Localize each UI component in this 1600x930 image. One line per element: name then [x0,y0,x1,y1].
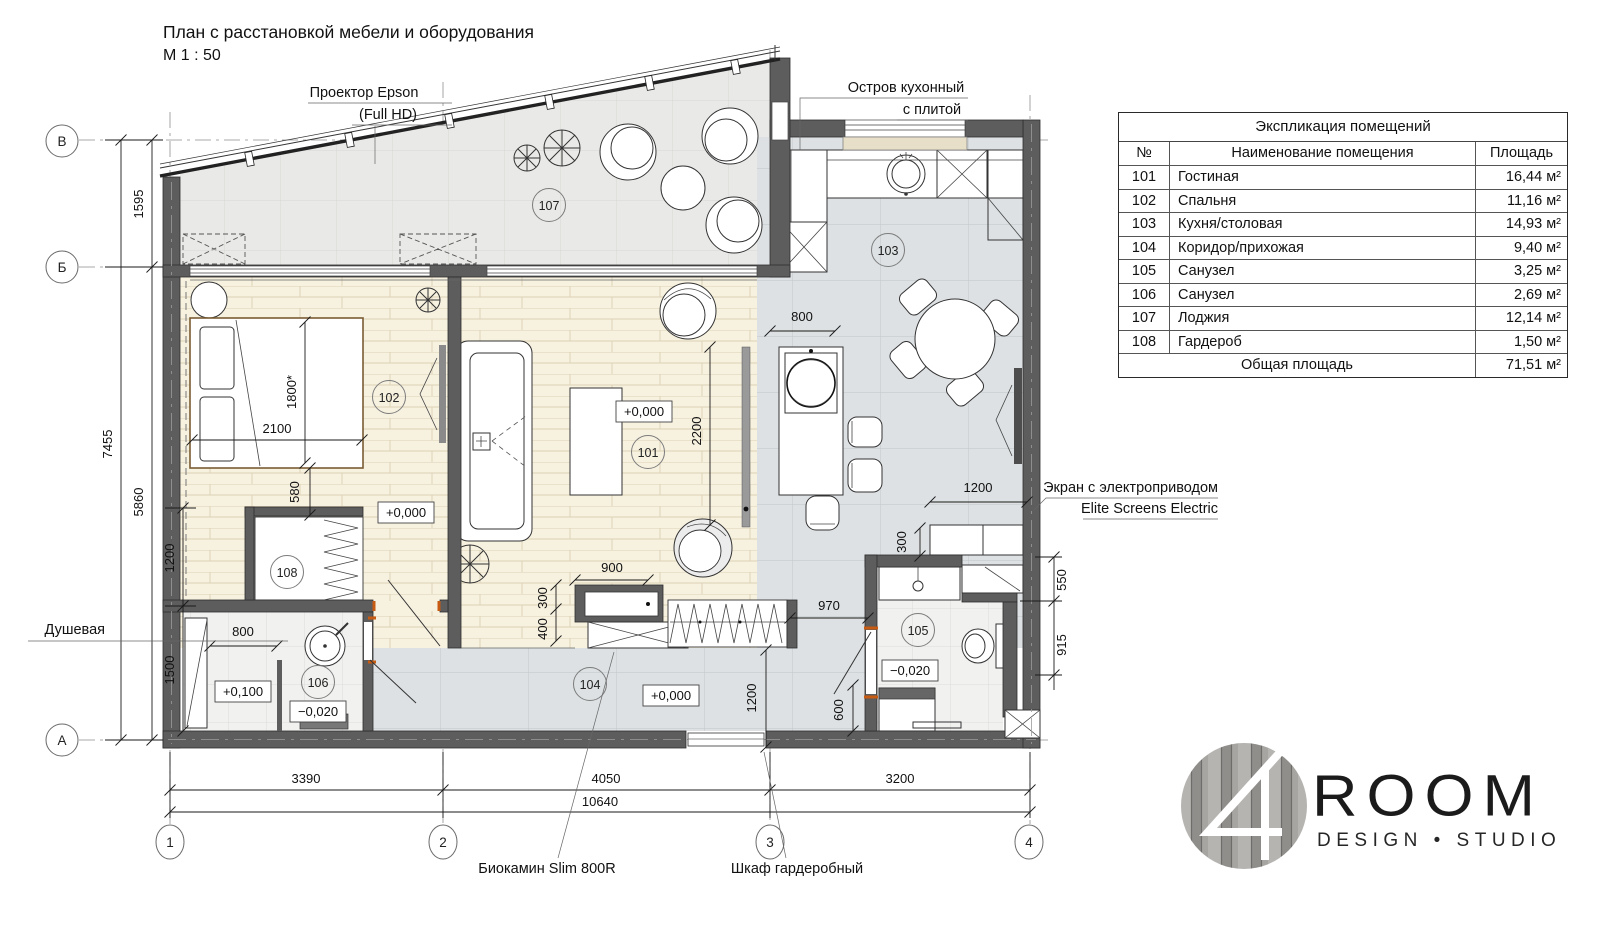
total-label: Общая площадь [1119,354,1475,377]
room-103: 103 [878,244,899,258]
table-row: 103Кухня/столовая14,93 м² [1119,213,1567,237]
screen-label-line2: Elite Screens Electric [1081,501,1218,517]
table-row: 108Гардероб1,50 м² [1119,331,1567,355]
kitchen-island [779,347,843,495]
level-shower: −0,020 [298,704,338,719]
table-header: № Наименование помещения Площадь [1119,142,1567,166]
dim-5860: 5860 [131,488,146,517]
logo-name: ROOM [1312,763,1544,829]
row-area: 9,40 м² [1475,237,1567,260]
axis-col-4: 4 [1025,835,1033,850]
coffee-table [570,388,622,495]
dim-900: 900 [601,560,623,575]
row-name: Коридор/прихожая [1169,237,1475,260]
dim-4050: 4050 [592,771,621,786]
armchair [660,283,716,339]
dim-600: 600 [831,699,846,721]
row-name: Санузел [1169,260,1475,283]
island-label-line1: Остров кухонный [848,80,964,96]
row-area: 12,14 м² [1475,307,1567,330]
room-106: 106 [308,676,329,690]
logo-wood-circle [1181,743,1307,869]
dim-580: 580 [287,481,302,503]
room-107: 107 [539,199,560,213]
projector-label-line2: (Full HD) [359,107,417,123]
row-name: Спальня [1169,190,1475,213]
axis-col-3: 3 [766,835,774,850]
level-bath: −0,020 [890,663,930,678]
island-label-line2: с плитой [903,102,961,118]
row-no: 108 [1119,331,1169,354]
dim-550: 550 [1054,569,1069,591]
bed [190,318,363,468]
row-no: 103 [1119,213,1169,236]
row-area: 14,93 м² [1475,213,1567,236]
table-total-row: Общая площадь 71,51 м² [1119,354,1567,377]
axis-col-1: 1 [166,835,174,850]
plant-icon [416,288,440,312]
armchair [674,519,732,577]
logo-mark [1178,738,1313,873]
dim-1200-corridor: 1200 [744,684,759,713]
tv-panel-bedroom [439,345,446,443]
table-row: 104Коридор/прихожая9,40 м² [1119,237,1567,261]
dim-800-island: 800 [791,309,813,324]
table-row: 105Санузел3,25 м² [1119,260,1567,284]
room-102: 102 [379,391,400,405]
row-name: Кухня/столовая [1169,213,1475,236]
room-105: 105 [908,624,929,638]
axis-row-mid: Б [58,260,67,275]
dim-800-shower: 800 [232,624,254,639]
room-101: 101 [638,446,659,460]
total-value: 71,51 м² [1475,354,1567,377]
sofa [456,341,532,541]
corridor-floor [373,648,865,731]
fireplace-label: Биокамин Slim 800R [478,861,615,877]
row-area: 3,25 м² [1475,260,1567,283]
logo-subtitle: DESIGN • STUDIO [1317,830,1561,852]
dim-3390: 3390 [292,771,321,786]
table-row: 101Гостиная16,44 м² [1119,166,1567,190]
dim-2100: 2100 [263,421,292,436]
row-no: 107 [1119,307,1169,330]
row-name: Гардероб [1169,331,1475,354]
table-row: 106Санузел2,69 м² [1119,284,1567,308]
studio-logo: ROOM DESIGN • STUDIO [1178,738,1568,878]
screen-label-line1: Экран с электроприводом [1043,480,1218,496]
projector-label-line1: Проектор Epson [310,85,419,101]
level-bedroom: +0,000 [386,505,426,520]
row-no: 104 [1119,237,1169,260]
tv-panel-kitchen [1014,368,1022,464]
loggia-floor [180,59,790,265]
col-number: № [1119,142,1169,165]
row-no: 106 [1119,284,1169,307]
hall-wardrobe [668,600,787,647]
shower-label: Душевая [44,622,105,638]
row-name: Санузел [1169,284,1475,307]
balcony-door [772,102,788,140]
wardrobe-label: Шкаф гардеробный [731,861,863,877]
dim-300-fireplace: 300 [535,587,550,609]
table-row: 107Лоджия12,14 м² [1119,307,1567,331]
closet-108 [255,517,363,600]
dim-1200-kitchen: 1200 [964,480,993,495]
table-title: Экспликация помещений [1119,113,1567,142]
col-area: Площадь [1475,142,1567,165]
dim-10640: 10640 [582,794,618,809]
axis-row-a: А [57,733,66,748]
room-104: 104 [580,678,601,692]
table-row: 102Спальня11,16 м² [1119,190,1567,214]
row-no: 101 [1119,166,1169,189]
dim-1200-left: 1200 [162,544,177,573]
row-area: 1,50 м² [1475,331,1567,354]
dim-300-bath: 300 [894,531,909,553]
dim-2200: 2200 [689,417,704,446]
dim-1595: 1595 [131,190,146,219]
dim-400-fireplace: 400 [535,618,550,640]
row-area: 11,16 м² [1475,190,1567,213]
axis-col-2: 2 [439,835,447,850]
row-name: Лоджия [1169,307,1475,330]
screen-drive-point [744,507,749,512]
dim-1500: 1500 [162,656,177,685]
level-living: +0,000 [624,404,664,419]
room-schedule-table: Экспликация помещений № Наименование пом… [1118,112,1568,378]
axis-row-b: В [57,134,66,149]
dim-1800: 1800* [284,375,299,409]
dim-970: 970 [818,598,840,613]
dim-7455: 7455 [100,430,115,459]
row-name: Гостиная [1169,166,1475,189]
projection-screen [742,347,750,527]
room-108: 108 [277,566,298,580]
row-no: 105 [1119,260,1169,283]
pouf [191,282,227,318]
row-area: 2,69 м² [1475,284,1567,307]
row-no: 102 [1119,190,1169,213]
shower-enclosure [185,618,207,728]
level-corridor: +0,000 [651,688,691,703]
entrance-door [688,733,764,746]
dim-915: 915 [1054,634,1069,656]
col-name: Наименование помещения [1169,142,1475,165]
level-shower-tray: +0,100 [223,684,263,699]
dim-3200: 3200 [886,771,915,786]
floor-plan-sheet: План с расстановкой мебели и оборудовани… [0,0,1600,930]
kitchen-window [843,120,967,150]
row-area: 16,44 м² [1475,166,1567,189]
